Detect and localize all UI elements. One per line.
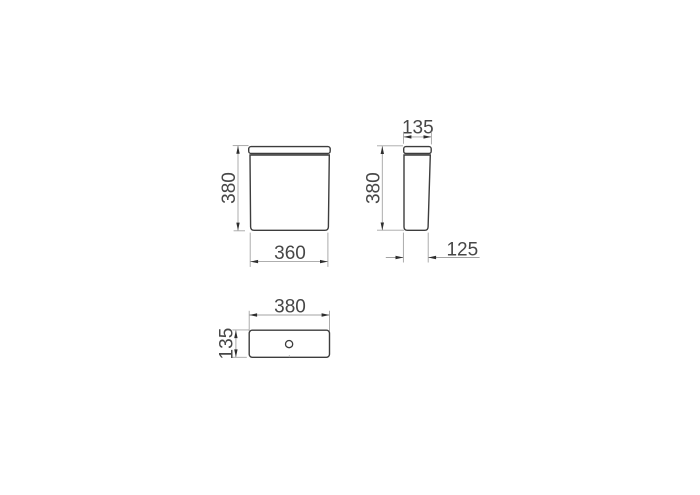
svg-text:360: 360: [274, 243, 306, 264]
svg-text:380: 380: [364, 172, 385, 204]
svg-text:125: 125: [446, 239, 478, 260]
svg-text:135: 135: [217, 328, 238, 360]
svg-text:380: 380: [219, 172, 240, 204]
svg-text:135: 135: [402, 118, 434, 139]
svg-text:380: 380: [274, 297, 306, 318]
